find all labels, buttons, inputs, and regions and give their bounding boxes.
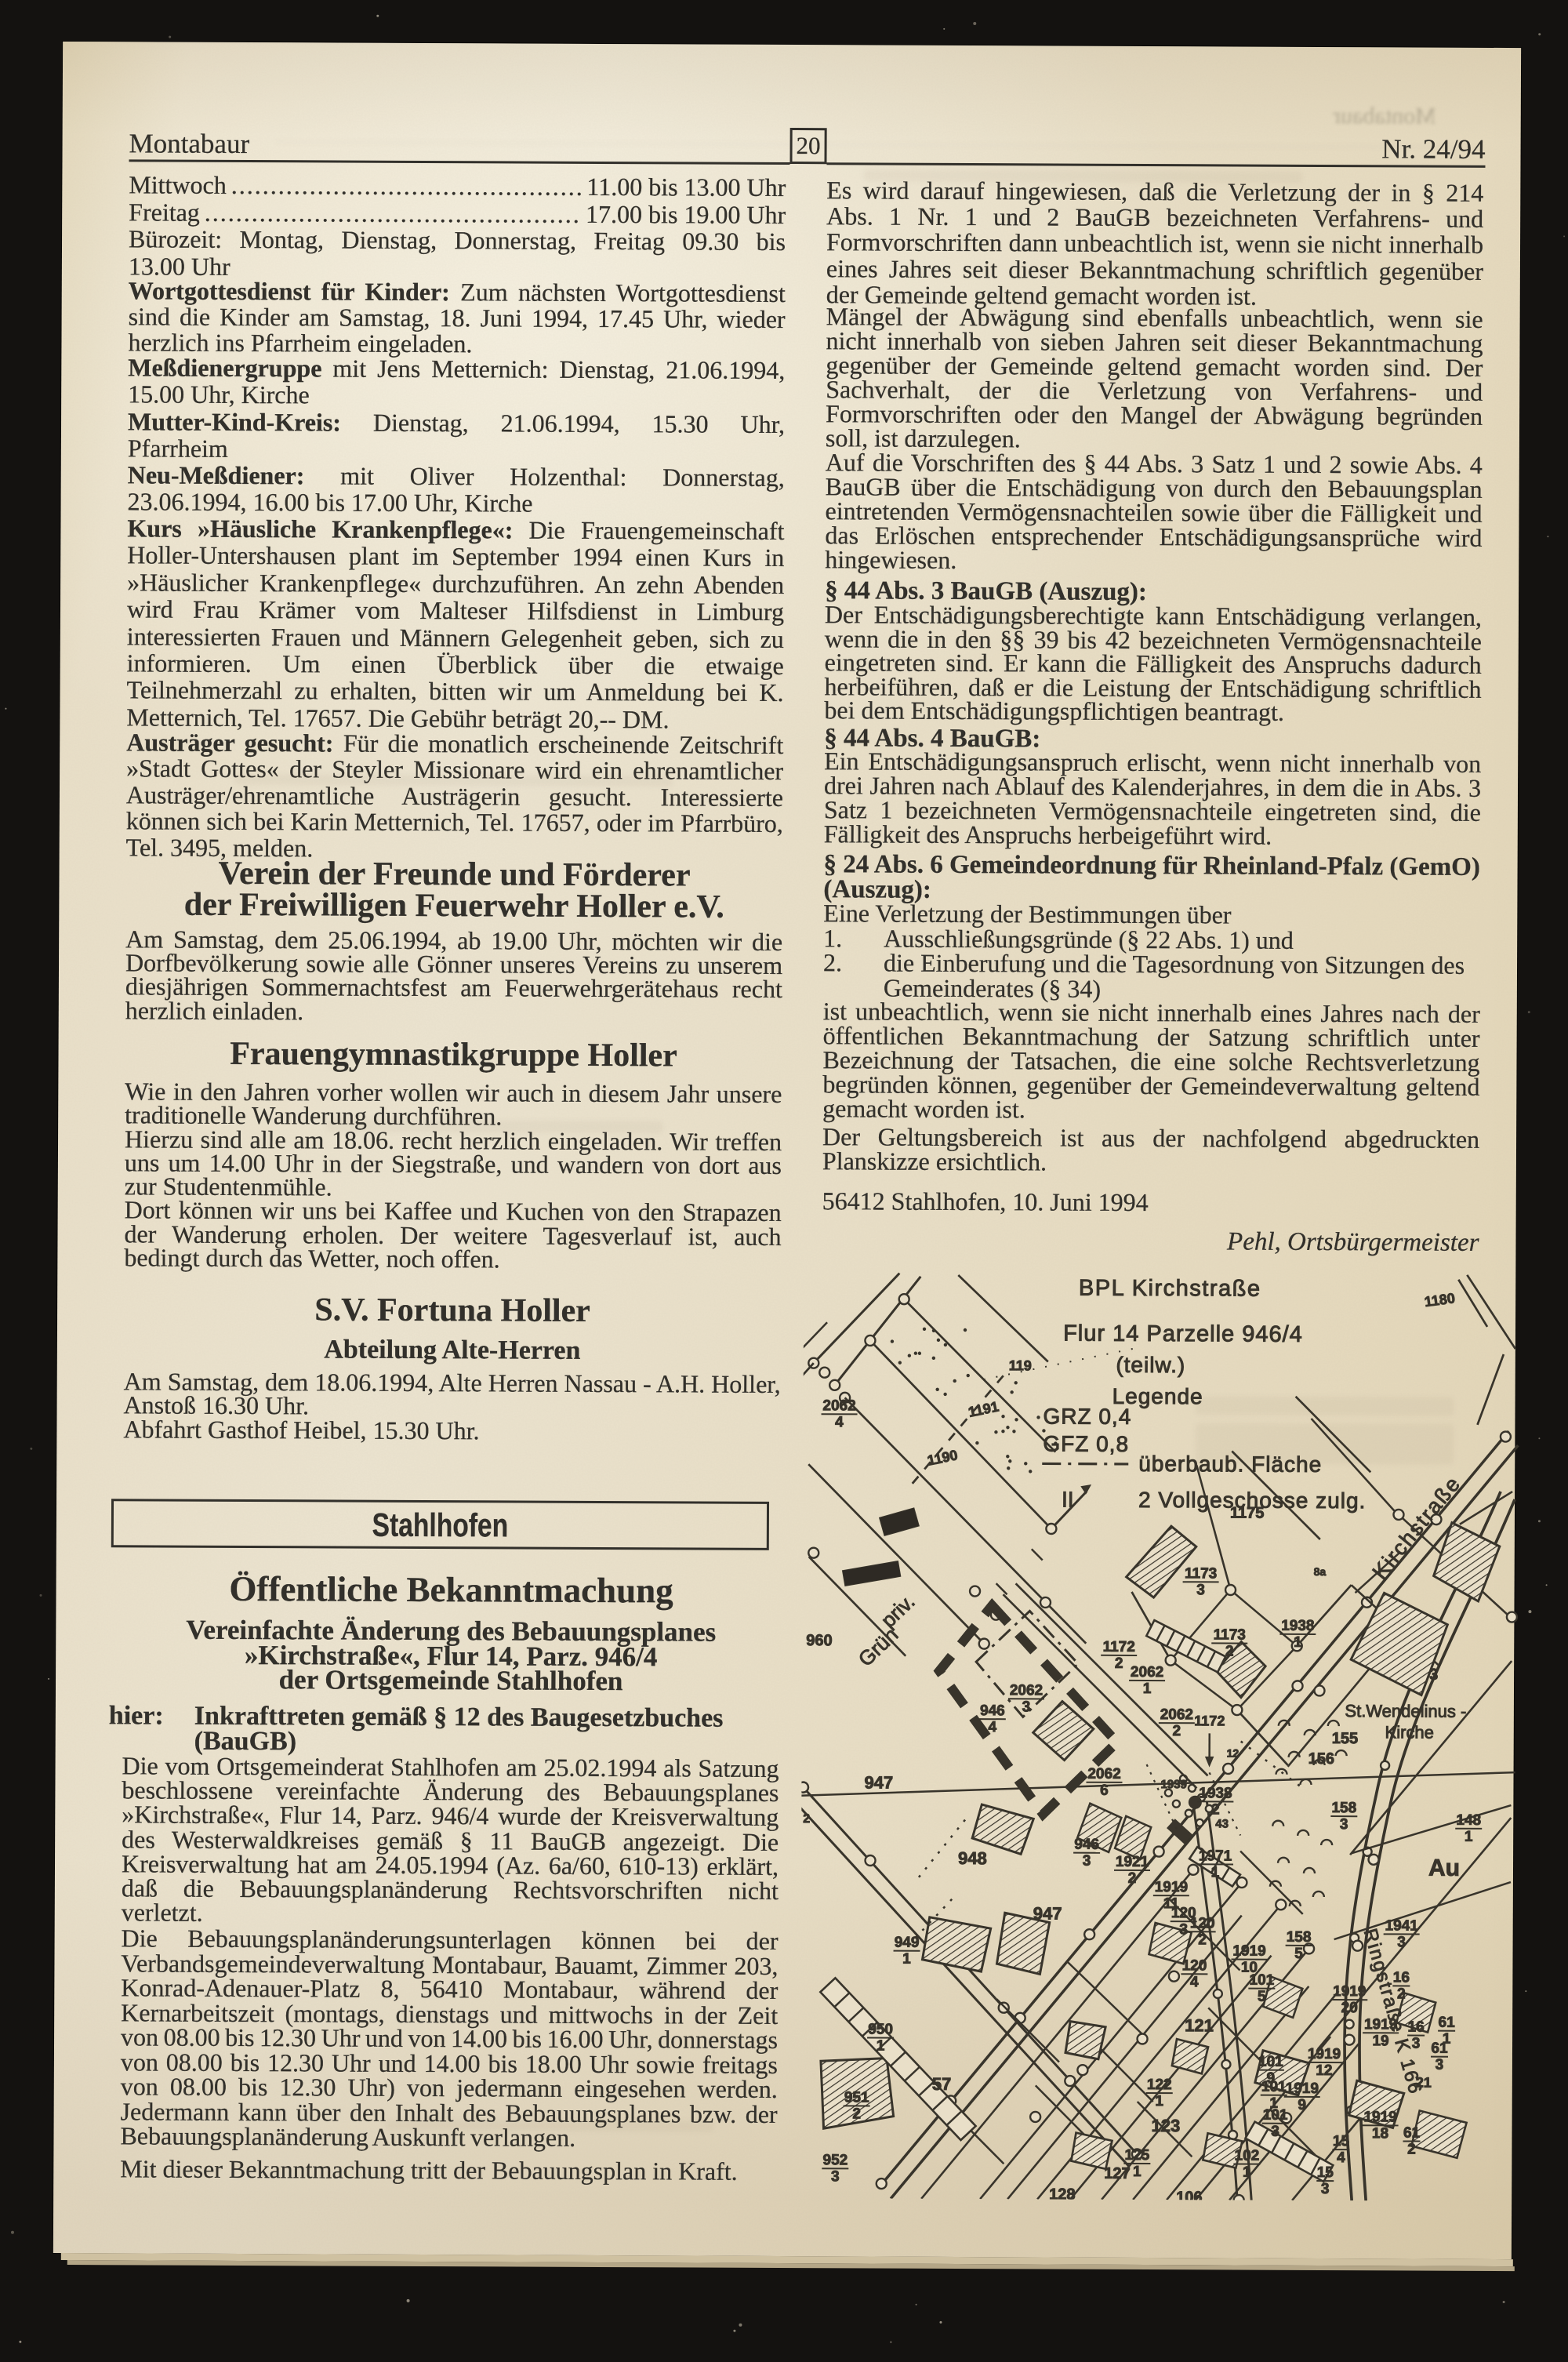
- svg-text:1190: 1190: [926, 1447, 959, 1469]
- svg-text:43: 43: [1215, 1817, 1229, 1830]
- svg-text:1172: 1172: [1103, 1639, 1135, 1655]
- svg-text:1919: 1919: [1333, 1983, 1366, 2000]
- svg-text:148: 148: [1456, 1812, 1481, 1829]
- svg-text:951: 951: [844, 2089, 869, 2106]
- svg-text:1: 1: [1465, 1829, 1473, 1845]
- svg-text:1172: 1172: [1194, 1713, 1225, 1728]
- svg-text:1938: 1938: [1199, 1785, 1232, 1801]
- svg-text:8a: 8a: [1314, 1565, 1327, 1578]
- svg-text:61: 61: [1403, 2124, 1421, 2141]
- svg-text:2062: 2062: [1010, 1682, 1043, 1699]
- svg-text:1921: 1921: [1116, 1854, 1149, 1870]
- svg-text:158: 158: [1287, 1929, 1312, 1946]
- svg-text:1173: 1173: [1214, 1626, 1246, 1643]
- svg-text:1173: 1173: [1185, 1565, 1217, 1582]
- svg-text:155: 155: [1332, 1730, 1358, 1747]
- svg-text:1938: 1938: [1281, 1618, 1314, 1634]
- svg-text:3: 3: [1340, 1816, 1348, 1833]
- svg-text:1: 1: [1155, 2093, 1163, 2109]
- svg-text:4: 4: [988, 1719, 996, 1735]
- svg-text:2062: 2062: [1131, 1664, 1163, 1681]
- svg-text:20: 20: [1341, 2000, 1358, 2016]
- svg-text:1919: 1919: [1232, 1943, 1265, 1960]
- svg-text:(teilw.): (teilw.): [1116, 1353, 1185, 1377]
- svg-text:2: 2: [803, 1812, 810, 1826]
- svg-text:5: 5: [1294, 1946, 1303, 1962]
- svg-text:2: 2: [1211, 1801, 1220, 1818]
- svg-text:952: 952: [822, 2152, 848, 2168]
- svg-text:6: 6: [1100, 1782, 1109, 1799]
- svg-text:2: 2: [1128, 1870, 1137, 1887]
- svg-text:1175: 1175: [1230, 1504, 1264, 1521]
- svg-text:3: 3: [831, 2168, 840, 2185]
- svg-text:950: 950: [868, 2021, 893, 2037]
- svg-text:1919: 1919: [1308, 2046, 1341, 2062]
- svg-text:BPL Kirchstraße: BPL Kirchstraße: [1079, 1276, 1261, 1302]
- svg-text:158: 158: [1331, 1800, 1356, 1816]
- svg-text:946: 946: [980, 1702, 1005, 1719]
- svg-text:101: 101: [1263, 2107, 1288, 2124]
- svg-text:947: 947: [1033, 1903, 1062, 1923]
- svg-text:106: 106: [1176, 2189, 1202, 2201]
- svg-text:12: 12: [1316, 2062, 1332, 2079]
- svg-text:3: 3: [1436, 2057, 1444, 2073]
- svg-text:3: 3: [1429, 1666, 1438, 1684]
- svg-text:3: 3: [1022, 1699, 1031, 1715]
- svg-text:1: 1: [1211, 1864, 1220, 1881]
- svg-text:18: 18: [1372, 2125, 1388, 2142]
- svg-text:127: 127: [1104, 2165, 1130, 2182]
- svg-text:1919: 1919: [1286, 2080, 1319, 2097]
- svg-text:4: 4: [1337, 2149, 1345, 2166]
- svg-text:2: 2: [1225, 1643, 1234, 1659]
- svg-text:960: 960: [806, 1632, 832, 1649]
- svg-text:1: 1: [1143, 1681, 1152, 1697]
- svg-text:156: 156: [1308, 1750, 1334, 1768]
- svg-text:120: 120: [1190, 1915, 1215, 1931]
- svg-text:9: 9: [1298, 2097, 1306, 2113]
- svg-text:57: 57: [932, 2074, 952, 2094]
- svg-text:3: 3: [1083, 1853, 1091, 1870]
- svg-text:1: 1: [1133, 2164, 1142, 2180]
- svg-text:128: 128: [1049, 2186, 1075, 2201]
- svg-text:3: 3: [1397, 1934, 1406, 1950]
- svg-text:122: 122: [1147, 2077, 1172, 2093]
- svg-text:2: 2: [1172, 1723, 1181, 1739]
- svg-text:1180: 1180: [1424, 1290, 1456, 1310]
- svg-text:Flur 14 Parzelle 946/4: Flur 14 Parzelle 946/4: [1063, 1321, 1303, 1347]
- svg-text:1971: 1971: [1199, 1848, 1232, 1864]
- svg-text:2: 2: [852, 2106, 861, 2122]
- svg-text:2: 2: [1198, 1931, 1207, 1948]
- svg-text:15: 15: [1317, 2164, 1334, 2181]
- svg-text:120: 120: [1182, 1957, 1207, 1974]
- svg-text:St.Wendelinus -: St.Wendelinus -: [1345, 1701, 1466, 1721]
- svg-text:2062: 2062: [822, 1397, 855, 1414]
- svg-text:2062: 2062: [1160, 1706, 1193, 1723]
- svg-text:1: 1: [1294, 1634, 1302, 1651]
- svg-text:1: 1: [902, 1951, 911, 1968]
- svg-text:949: 949: [895, 1935, 920, 1951]
- svg-text:4: 4: [1190, 1974, 1199, 1990]
- svg-text:überbaub. Fläche: überbaub. Fläche: [1138, 1452, 1322, 1477]
- svg-text:119: 119: [1009, 1357, 1032, 1373]
- svg-text:3: 3: [1321, 2181, 1330, 2197]
- svg-text:Kirche: Kirche: [1385, 1722, 1434, 1742]
- svg-text:10: 10: [1241, 1960, 1258, 1976]
- svg-text:1191: 1191: [967, 1398, 1000, 1420]
- svg-text:1939: 1939: [1160, 1778, 1186, 1791]
- svg-text:102: 102: [1235, 2148, 1260, 2164]
- svg-text:946: 946: [1074, 1837, 1099, 1853]
- svg-text:947: 947: [864, 1772, 893, 1792]
- svg-text:Au: Au: [1428, 1855, 1460, 1881]
- svg-text:GRZ 0,4: GRZ 0,4: [1043, 1404, 1131, 1428]
- svg-text:15: 15: [1333, 2133, 1350, 2149]
- svg-text:19: 19: [1372, 2033, 1388, 2049]
- svg-text:Grün: Grün: [854, 1623, 903, 1671]
- svg-text:123: 123: [1152, 2116, 1181, 2135]
- svg-text:101: 101: [1261, 2079, 1287, 2095]
- svg-text:4: 4: [835, 1414, 844, 1430]
- svg-text:12: 12: [1227, 1746, 1240, 1759]
- svg-text:61: 61: [1431, 2040, 1448, 2057]
- svg-text:1919: 1919: [1155, 1879, 1188, 1895]
- svg-text:3: 3: [1196, 1582, 1205, 1598]
- svg-text:5: 5: [1258, 1989, 1266, 2005]
- svg-text:125: 125: [1125, 2147, 1150, 2164]
- svg-text:1919: 1919: [1363, 2109, 1396, 2125]
- svg-text:2: 2: [1115, 1655, 1123, 1672]
- svg-text:1: 1: [877, 2038, 885, 2055]
- svg-text:948: 948: [958, 1848, 987, 1868]
- svg-text:1941: 1941: [1385, 1917, 1419, 1934]
- svg-text:2062: 2062: [1087, 1766, 1120, 1782]
- svg-text:3: 3: [1271, 2124, 1279, 2140]
- svg-text:1: 1: [1243, 2164, 1251, 2181]
- svg-text:101: 101: [1258, 2054, 1283, 2070]
- svg-text:2: 2: [1407, 2141, 1416, 2157]
- svg-text:3: 3: [1179, 1921, 1188, 1938]
- svg-text:121: 121: [1185, 2015, 1214, 2035]
- svg-text:61: 61: [1439, 2015, 1456, 2031]
